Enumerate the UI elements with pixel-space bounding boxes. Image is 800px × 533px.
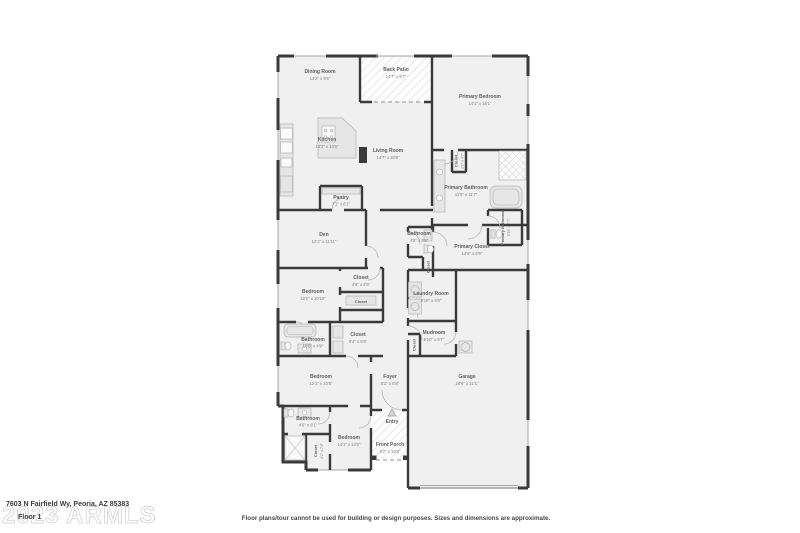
room-dims: 4'6" x 8'1" bbox=[299, 423, 318, 428]
room-dims: 12'1" x 11'11" bbox=[312, 239, 337, 244]
room-dims: 14'7" x 20'9" bbox=[377, 155, 400, 160]
dishwasher-icon bbox=[281, 142, 293, 153]
room-dims: 8'4" x 5'5" bbox=[349, 339, 368, 344]
room-name: Closet bbox=[355, 299, 368, 304]
room-dims: 7'1" x 6'1" bbox=[332, 202, 351, 207]
room-dims: 20'6" x 21'1" bbox=[456, 381, 479, 386]
disclaimer-text: Floor plans/tour cannot be used for buil… bbox=[242, 515, 551, 522]
floor-plan-canvas: Dining Room 13'2" x 9'6" Back Patio 14'7… bbox=[0, 0, 800, 533]
toilet-icon bbox=[491, 230, 495, 238]
room-name: Den bbox=[319, 232, 328, 238]
room-name: Mudroom bbox=[423, 330, 446, 336]
toilet-icon bbox=[284, 409, 288, 417]
oven-icon bbox=[281, 128, 293, 139]
pantry-shelf bbox=[322, 188, 360, 194]
room-name: Foyer bbox=[383, 374, 397, 380]
room-dims: 14'1" x 13'0" bbox=[338, 442, 361, 447]
room-dims: 11'9" x 11'7" bbox=[455, 192, 478, 197]
room-name: Closet bbox=[412, 338, 417, 351]
room-name: Back Patio bbox=[383, 67, 409, 73]
room-name: Front Porch bbox=[376, 442, 404, 448]
room-label-mud-closet: Closet bbox=[412, 338, 417, 351]
sink-icon bbox=[437, 169, 443, 175]
porch-post bbox=[372, 456, 377, 461]
room-dims: 3'10" x 7'7" bbox=[507, 218, 511, 236]
room-label-bathroom3: Bathroom 4'6" x 8'1" bbox=[296, 416, 320, 428]
shelf-icon bbox=[333, 326, 343, 338]
room-dims: 14'2" x 13'6" bbox=[316, 144, 339, 149]
room-dims: 2'2" x 7'2" bbox=[320, 442, 324, 458]
room-name: Closet bbox=[454, 154, 459, 167]
room-label-hall-closet: Closet bbox=[426, 260, 431, 273]
floor-label: Floor 1 bbox=[18, 514, 41, 521]
room-dims: 14'6" x 6'6" bbox=[462, 251, 483, 256]
garage-fixtures bbox=[459, 341, 472, 353]
room-name: Primary Bathroom bbox=[444, 185, 488, 191]
room-name: Primary Closet bbox=[454, 244, 490, 250]
room-dims: 6'2" x 6'8" bbox=[381, 381, 400, 386]
toilet-icon bbox=[281, 342, 285, 350]
room-label-closet2b: Closet bbox=[355, 299, 368, 304]
room-dims: 12'1" x 10'8" bbox=[310, 381, 333, 386]
room-dims: 12'2" x 10'10" bbox=[300, 296, 326, 301]
room-name: Bathroom bbox=[301, 337, 325, 343]
room-name: Primary Bedroom bbox=[459, 94, 502, 100]
room-dims: 8'10" x 6'6" bbox=[421, 298, 442, 303]
room-name: Pantry bbox=[333, 195, 349, 201]
room-name: Living Room bbox=[373, 148, 404, 154]
room-dims: 4'6" x 2'6" bbox=[352, 282, 371, 287]
room-name: Bathroom bbox=[407, 231, 431, 237]
room-dims: 5'10" x 6'7" bbox=[424, 337, 445, 342]
room-name: Entry bbox=[386, 419, 399, 425]
room-dims: 14'7" x 9'7" bbox=[386, 74, 407, 79]
room-label-entry: Entry bbox=[386, 419, 399, 425]
floor-plan-page: Dining Room 13'2" x 9'6" Back Patio 14'7… bbox=[0, 0, 800, 533]
room-name: Kitchen bbox=[318, 137, 336, 143]
room-label-pantry: Pantry 7'1" x 6'1" bbox=[332, 195, 351, 207]
room-label-bathroom2: Bathroom 10'6" x 4'9" bbox=[301, 337, 325, 349]
room-dims: 4'8" x 9'8" bbox=[410, 238, 429, 243]
room-name: Closet bbox=[313, 444, 318, 457]
back-patio-area bbox=[362, 58, 431, 103]
room-dims: 2'1" x 4'7" bbox=[461, 152, 465, 168]
room-name: Closet bbox=[426, 260, 431, 273]
room-name: Closet bbox=[350, 332, 366, 338]
room-name: Dining Room bbox=[304, 69, 336, 75]
dryer-icon bbox=[409, 299, 422, 314]
shelf-icon bbox=[333, 341, 343, 353]
room-name: Primary Bathroom bbox=[500, 210, 505, 245]
property-address: 7603 N Fairfield Wy, Peoria, AZ 85383 bbox=[6, 501, 129, 508]
fridge-icon bbox=[281, 176, 293, 192]
sink-icon bbox=[437, 195, 443, 201]
room-name: Bedroom bbox=[302, 289, 325, 295]
bathtub-icon bbox=[284, 324, 316, 337]
room-dims: 10'6" x 4'9" bbox=[303, 344, 324, 349]
room-name: Bedroom bbox=[310, 374, 333, 380]
room-dims: 13'2" x 9'6" bbox=[310, 76, 331, 81]
room-name: Laundry Room bbox=[413, 291, 449, 297]
room-name: Bathroom bbox=[296, 416, 320, 422]
kitchen-sink-icon bbox=[281, 158, 292, 167]
room-name: Bedroom bbox=[338, 435, 361, 441]
room-dims: 14'1" x 16'1" bbox=[469, 101, 492, 106]
fireplace bbox=[359, 147, 367, 163]
room-dims: 8'2" x 15'8" bbox=[380, 449, 401, 454]
room-name: Closet bbox=[353, 275, 369, 281]
room-name: Garage bbox=[458, 374, 475, 380]
